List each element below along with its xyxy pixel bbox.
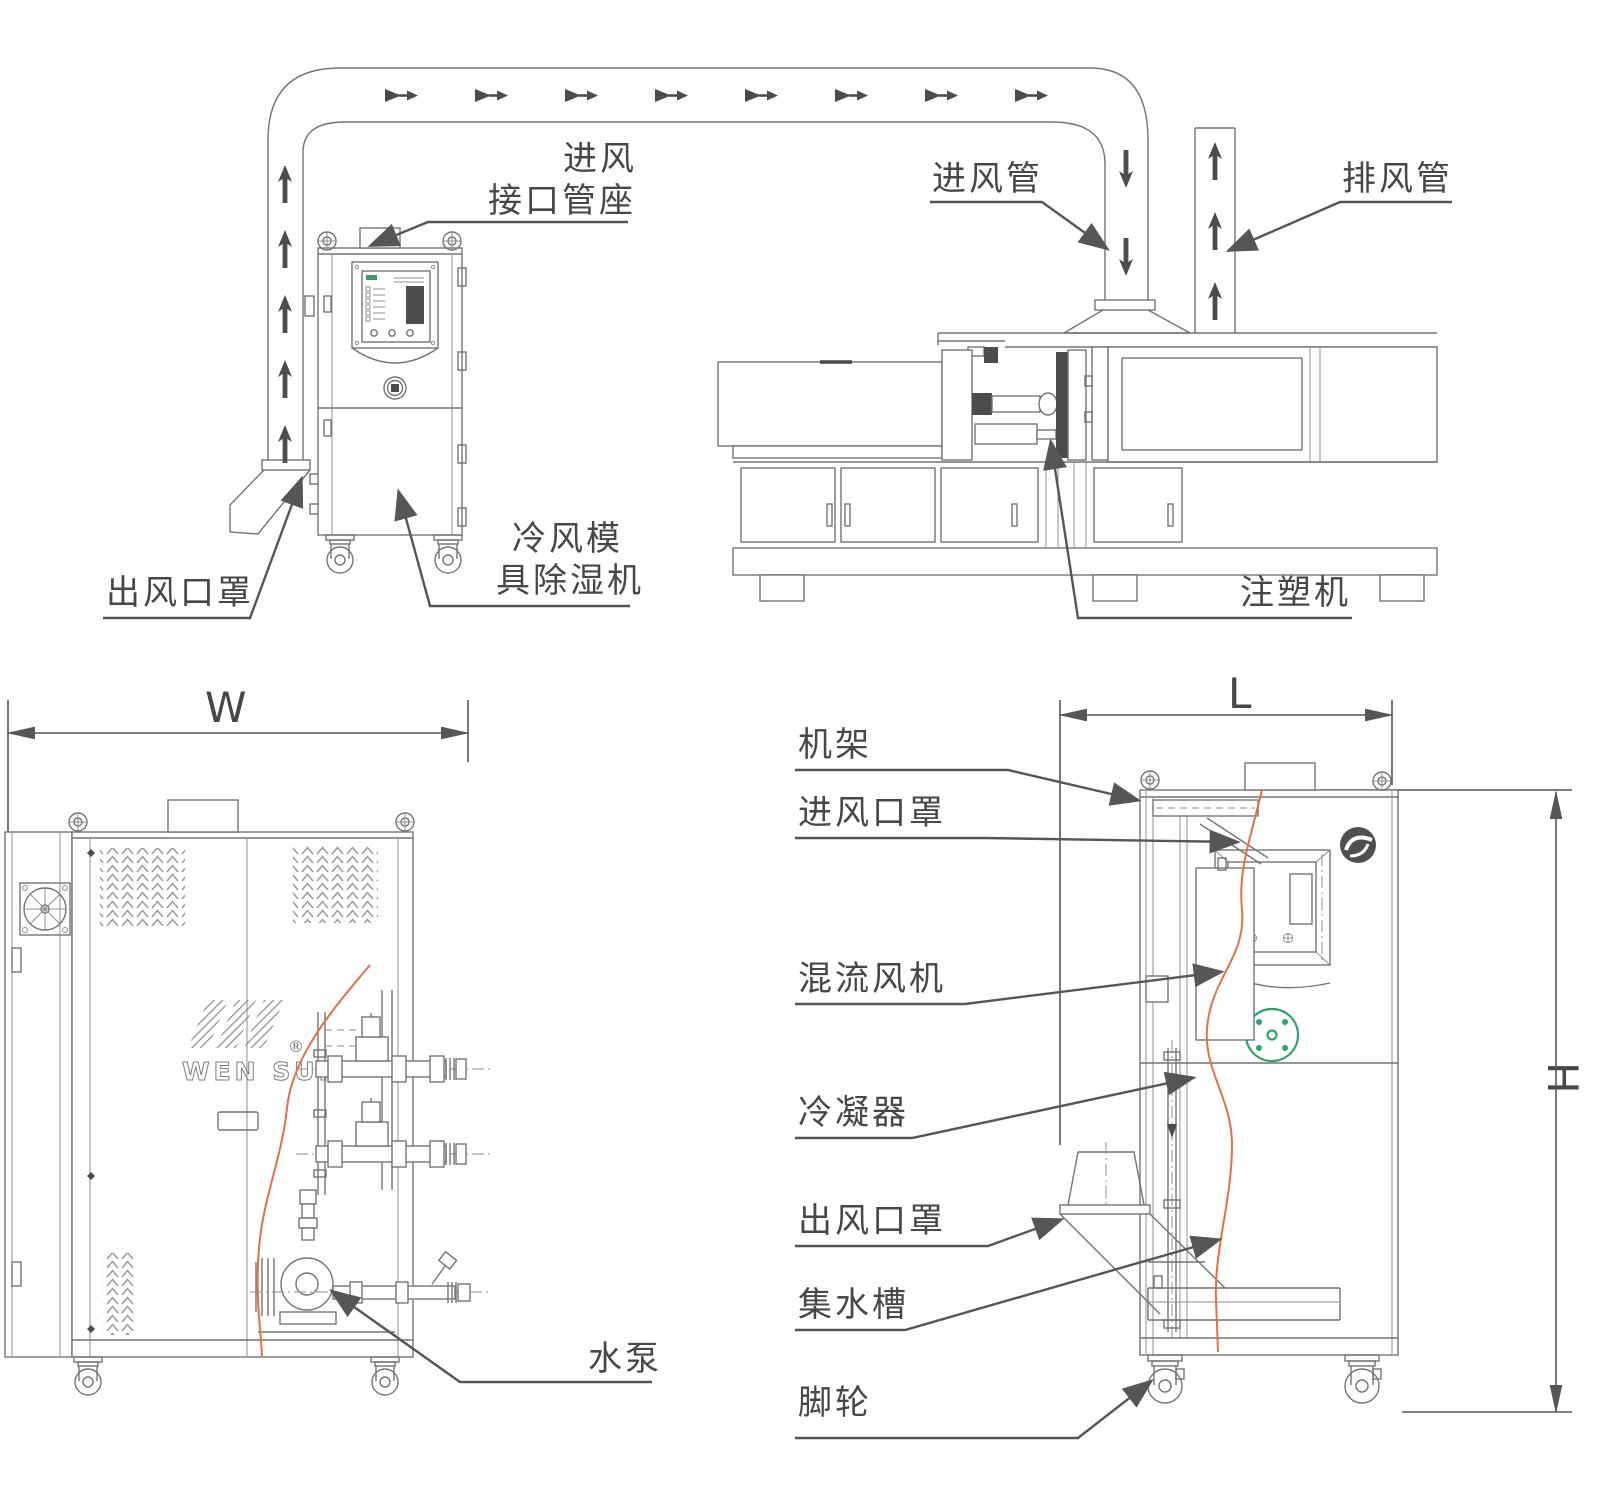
side-panel	[5, 832, 72, 1357]
side-cabinet	[1140, 763, 1398, 1355]
label-text: 进风管	[932, 159, 1043, 199]
label-intake-pipe: 进风管	[930, 159, 1106, 248]
label-intake-socket: 接口管座	[372, 181, 636, 245]
caster-icon	[434, 535, 462, 573]
dimension-label: H	[1538, 1062, 1587, 1094]
label-condenser: 冷凝器	[795, 1078, 1192, 1138]
label-text: 混流风机	[798, 959, 946, 999]
carriage-plate	[942, 350, 972, 460]
front-cabinet: ® WEN SUI	[69, 800, 414, 1357]
brand-roundel	[1340, 827, 1376, 863]
caster-icon	[1345, 1355, 1381, 1403]
side-view: L H	[795, 669, 1587, 1438]
label-exhaust-pipe: 排风管	[1230, 159, 1453, 250]
barrel	[992, 396, 1040, 412]
label-text: 集水槽	[798, 1285, 909, 1325]
label-frame: 机架	[795, 725, 1137, 800]
installation-diagram: 进风 接口管座 进风管 排风管 出风口罩 冷风模 具除湿机 注塑机	[103, 68, 1453, 618]
control-panel	[352, 262, 438, 363]
label-text: 进风口罩	[798, 793, 946, 833]
dehumidifier-unit	[318, 228, 466, 573]
caster-icon	[74, 1357, 102, 1395]
technical-drawing-sheet: 进风 接口管座 进风管 排风管 出风口罩 冷风模 具除湿机 注塑机 W	[0, 0, 1600, 1491]
mixed-flow-fan-box	[1196, 868, 1254, 1040]
top-duct-stub	[168, 800, 238, 832]
label-text: 脚轮	[798, 1383, 872, 1423]
intake-socket-stub	[360, 228, 400, 248]
label-caster: 脚轮	[795, 1382, 1150, 1438]
label-text: 出风口罩	[106, 573, 254, 613]
vent-louvers	[293, 845, 378, 923]
label-text: 排风管	[1342, 159, 1453, 199]
injection-molding-machine	[718, 333, 1437, 601]
label-outlet-cover-side: 出风口罩	[795, 1201, 1060, 1246]
label-text: 冷凝器	[798, 1093, 909, 1133]
panel-logo-mark	[366, 275, 377, 280]
label-text: 水泵	[588, 1339, 662, 1379]
label-text: 机架	[798, 725, 872, 765]
drawing-svg: 进风 接口管座 进风管 排风管 出风口罩 冷风模 具除湿机 注塑机 W	[0, 0, 1600, 1491]
label-intake-air: 进风	[563, 139, 637, 179]
exhaust-duct	[1195, 128, 1235, 333]
vent-louvers	[100, 848, 185, 926]
vent-louvers	[103, 1253, 135, 1335]
registered-mark: ®	[288, 1037, 304, 1056]
label-text: 冷风模	[512, 519, 623, 559]
airflow-arrows-horizontal	[385, 89, 1048, 102]
mold-platen	[1056, 352, 1068, 458]
caster-icon	[371, 1357, 399, 1395]
panel-display	[406, 286, 424, 324]
label-text: 出风口罩	[798, 1201, 946, 1241]
caster-icon	[1148, 1355, 1184, 1403]
dimension-label: W	[205, 683, 247, 732]
caster-icon	[326, 535, 354, 573]
brand-name: WEN SUI	[182, 1057, 332, 1086]
injection-unit	[718, 362, 942, 446]
label-text: 进风	[563, 139, 637, 179]
brand-emblem	[384, 377, 406, 399]
front-view: W	[5, 683, 662, 1395]
label-text: 注塑机	[1240, 573, 1351, 613]
airflow-arrows-up-duct	[278, 165, 292, 463]
label-text: 接口管座	[488, 181, 636, 221]
top-duct-stub	[1245, 763, 1315, 790]
dimension-label: L	[1228, 669, 1252, 718]
label-outlet-cover-top: 出风口罩	[103, 480, 301, 618]
airflow-arrows-intake-down	[1119, 150, 1133, 276]
label-text: 具除湿机	[496, 561, 644, 601]
